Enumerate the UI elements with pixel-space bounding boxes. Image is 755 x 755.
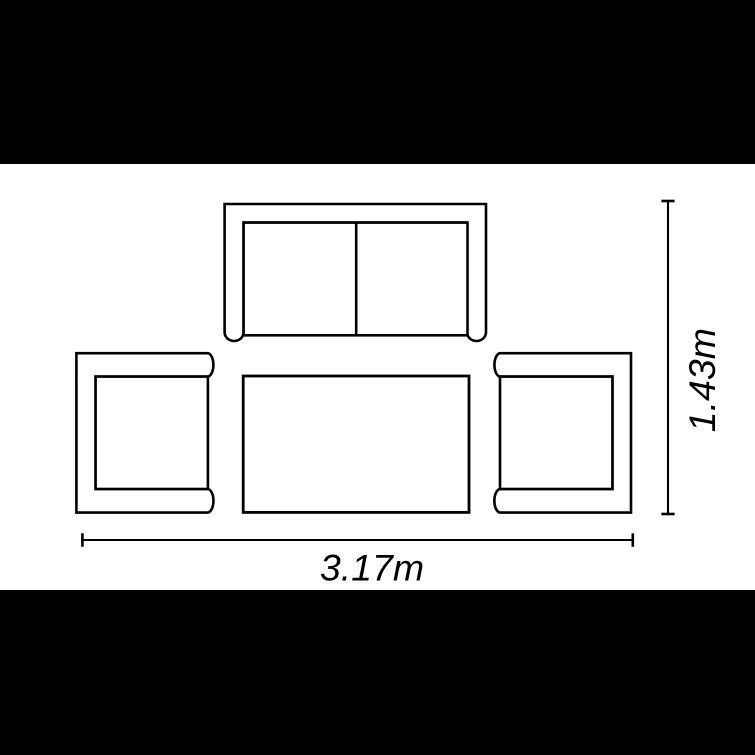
svg-text:3.17m: 3.17m xyxy=(320,547,424,589)
svg-text:1.43m: 1.43m xyxy=(681,328,723,432)
